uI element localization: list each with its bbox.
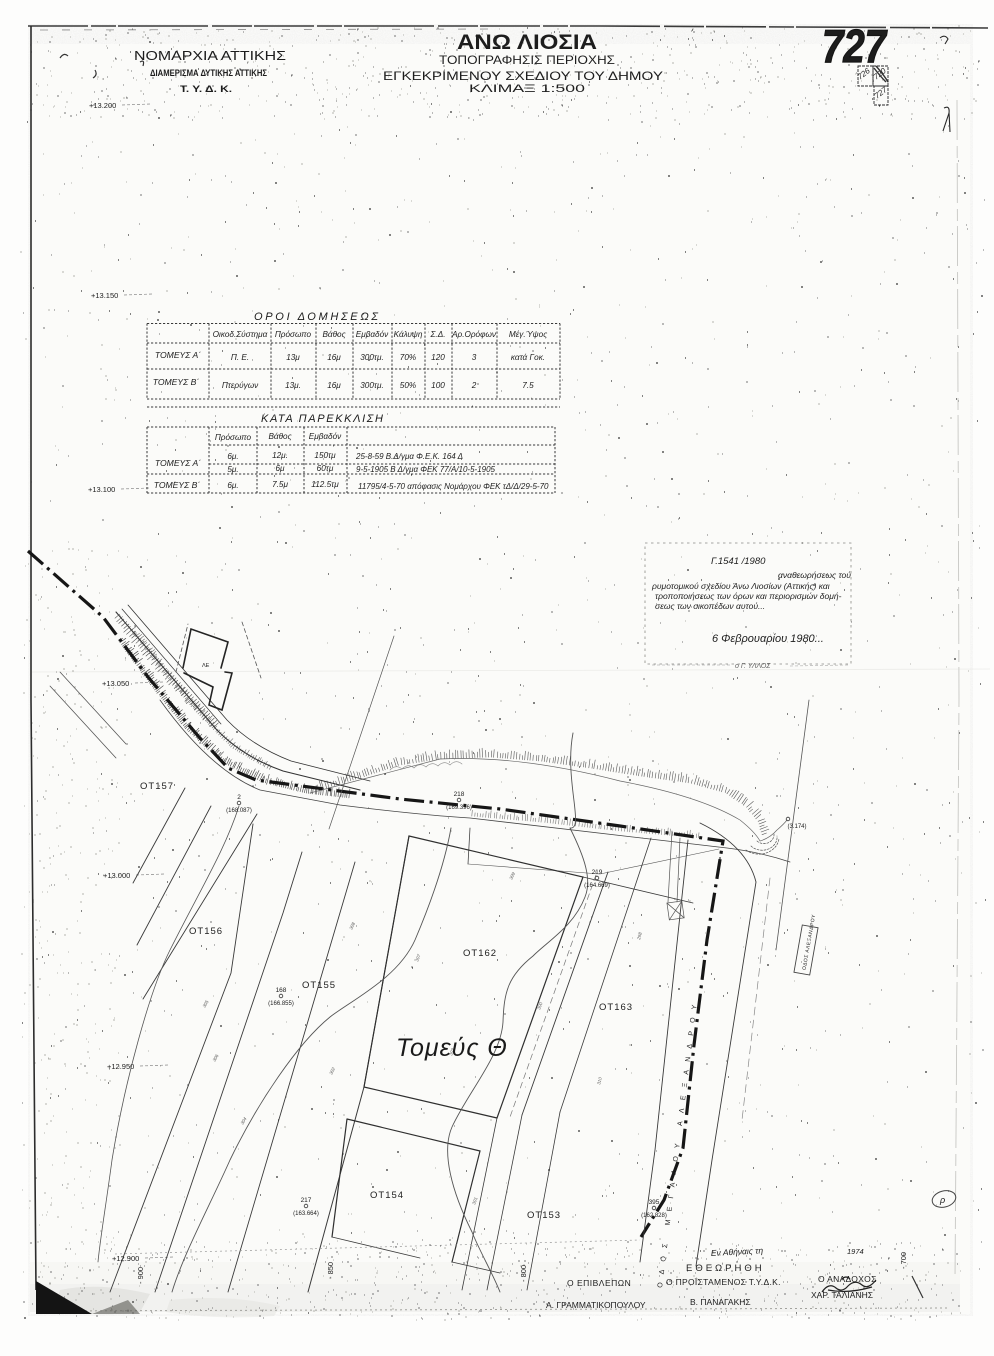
svg-text:(166.855): (166.855): [268, 1001, 294, 1007]
svg-text:218: 218: [454, 791, 465, 798]
svg-text:Γ.1541 /1980: Γ.1541 /1980: [711, 556, 766, 567]
svg-text:13μ.: 13μ.: [285, 381, 301, 390]
svg-text:Α. ΓΡΑΜΜΑΤΙΚΟΠΟΥΛΟΥ: Α. ΓΡΑΜΜΑΤΙΚΟΠΟΥΛΟΥ: [546, 1300, 646, 1310]
svg-text:+13.000: +13.000: [103, 871, 130, 880]
svg-text:Σ.Δ.: Σ.Δ.: [430, 330, 446, 339]
svg-text:Ο ΠΡΟΪΣΤΑΜΕΝΟΣ Τ.Υ.Δ.Κ.: Ο ΠΡΟΪΣΤΑΜΕΝΟΣ Τ.Υ.Δ.Κ.: [666, 1277, 781, 1287]
svg-text:Ο ΕΠΙΒΛΕΠΩΝ: Ο ΕΠΙΒΛΕΠΩΝ: [567, 1278, 631, 1288]
svg-text:Εμβαδόν: Εμβαδόν: [356, 330, 389, 339]
svg-text:- 700: - 700: [899, 1252, 908, 1269]
svg-text:+13.050: +13.050: [102, 679, 129, 688]
svg-text:Ο ΑΝΑΔΟΧΟΣ: Ο ΑΝΑΔΟΧΟΣ: [818, 1274, 877, 1284]
svg-text:217: 217: [301, 1197, 312, 1204]
svg-text:395: 395: [649, 1199, 660, 1206]
svg-text:(3.174): (3.174): [787, 824, 806, 830]
svg-text:(168.087): (168.087): [226, 808, 252, 814]
svg-text:Π. Ε.: Π. Ε.: [231, 353, 249, 362]
svg-text:σεως των οικοπέδων αυτού...: σεως των οικοπέδων αυτού...: [655, 601, 765, 611]
svg-text:50%: 50%: [400, 381, 416, 390]
svg-text:ΟΤ157: ΟΤ157: [140, 781, 174, 792]
svg-text:120: 120: [431, 353, 445, 362]
svg-text:12μ.: 12μ.: [272, 451, 288, 460]
svg-text:Πρόσωπο: Πρόσωπο: [215, 433, 252, 442]
svg-text:ΑΝΩ ΛΙΟΣΙΑ: ΑΝΩ ΛΙΟΣΙΑ: [457, 31, 597, 54]
svg-text:1974: 1974: [847, 1247, 864, 1256]
svg-text:16μ: 16μ: [327, 381, 341, 390]
svg-text:- 900: - 900: [136, 1267, 145, 1284]
svg-text:Πτερύγων: Πτερύγων: [222, 381, 259, 390]
svg-text:ρ: ρ: [939, 1195, 945, 1205]
svg-text:ΟΤ162: ΟΤ162: [463, 948, 497, 959]
svg-text:Βάθος: Βάθος: [268, 432, 291, 441]
svg-text:ο Γ. ΥΛΛΟΣ: ο Γ. ΥΛΛΟΣ: [735, 663, 771, 670]
svg-text:ΚΛΙΜΑΞ 1:500: ΚΛΙΜΑΞ 1:500: [469, 83, 585, 95]
svg-text:7.5μ: 7.5μ: [272, 480, 288, 489]
svg-text:219: 219: [592, 869, 603, 876]
svg-text:5μ.: 5μ.: [227, 465, 238, 474]
svg-text:(164.669): (164.669): [584, 883, 610, 889]
svg-text:- 850: - 850: [326, 1262, 335, 1279]
svg-text:ΟΤ154: ΟΤ154: [370, 1190, 404, 1201]
svg-text:6μ.: 6μ.: [227, 481, 238, 490]
svg-text:9-5-1905 Β Δ/γμα ΦΕΚ 77/Α/10-5: 9-5-1905 Β Δ/γμα ΦΕΚ 77/Α/10-5-1905: [356, 465, 496, 474]
svg-text:ΕΘΕΩΡΗΘΗ: ΕΘΕΩΡΗΘΗ: [686, 1263, 765, 1274]
svg-text:ΤΟΠΟΓΡΑΦΗΣΙΣ ΠΕΡΙΟΧΗΣ: ΤΟΠΟΓΡΑΦΗΣΙΣ ΠΕΡΙΟΧΗΣ: [439, 53, 615, 67]
svg-text:+13.100: +13.100: [88, 485, 115, 494]
svg-text:300τμ.: 300τμ.: [360, 353, 383, 362]
svg-text:αναθεωρήσεως τού: αναθεωρήσεως τού: [778, 570, 851, 580]
svg-text:2: 2: [471, 381, 477, 390]
svg-text:Τομεύς Θ: Τομεύς Θ: [396, 1034, 508, 1062]
svg-text:100: 100: [431, 381, 445, 390]
svg-text:ΚΑΤΑ ΠΑΡΕΚΚΛΙΣΗ: ΚΑΤΑ ΠΑΡΕΚΚΛΙΣΗ: [261, 413, 383, 425]
svg-text:2: 2: [237, 794, 241, 801]
svg-text:ΤΟΜΕΥΣ Β΄: ΤΟΜΕΥΣ Β΄: [154, 480, 201, 490]
svg-text:60τμ: 60τμ: [317, 464, 334, 473]
svg-text:ΝΟΜΑΡΧΙΑ ΑΤΤΙΚΗΣ: ΝΟΜΑΡΧΙΑ ΑΤΤΙΚΗΣ: [134, 48, 286, 63]
svg-text:ΤΟΜΕΥΣ Α΄: ΤΟΜΕΥΣ Α΄: [155, 350, 201, 360]
svg-text:(169.396): (169.396): [446, 805, 472, 811]
svg-text:- 800: - 800: [519, 1265, 528, 1282]
svg-text:Αρ.Ορόφων: Αρ.Ορόφων: [451, 330, 497, 339]
svg-text:ΛΕ: ΛΕ: [202, 663, 210, 669]
svg-text:κατά Γοκ.: κατά Γοκ.: [511, 353, 545, 362]
svg-text:(163.664): (163.664): [293, 1211, 319, 1217]
svg-text:τροποποιήσεως των όρων και περ: τροποποιήσεως των όρων και περιορισμών δ…: [655, 591, 842, 601]
svg-text:ΟΤ163: ΟΤ163: [599, 1002, 633, 1013]
svg-text:ΤΟΜΕΥΣ Β΄: ΤΟΜΕΥΣ Β΄: [153, 377, 200, 387]
svg-text:3: 3: [472, 353, 477, 362]
svg-text:300τμ.: 300τμ.: [360, 381, 383, 390]
svg-text:Εμβαδόν: Εμβαδόν: [309, 432, 342, 441]
svg-text:13μ: 13μ: [286, 353, 300, 362]
svg-text:ΟΤ155: ΟΤ155: [302, 980, 336, 991]
svg-text:112.5τμ: 112.5τμ: [311, 480, 339, 489]
svg-text:(162.828): (162.828): [641, 1213, 667, 1219]
svg-text:6 Φεβρουαρίου 1980...: 6 Φεβρουαρίου 1980...: [712, 633, 824, 645]
svg-text:Βάθος: Βάθος: [322, 330, 345, 339]
svg-text:6μ: 6μ: [275, 464, 285, 473]
svg-text:25-8-59 Β.Δ/γμα Φ.Ε.Κ. 164 Δ: 25-8-59 Β.Δ/γμα Φ.Ε.Κ. 164 Δ: [355, 452, 463, 461]
svg-text:70%: 70%: [400, 353, 416, 362]
svg-text:ΟΤ153: ΟΤ153: [527, 1210, 561, 1221]
svg-text:Πρόσωπο: Πρόσωπο: [275, 330, 312, 339]
svg-text:11795/4-5-70 απόφασις Νομάρχου: 11795/4-5-70 απόφασις Νομάρχου ΦΕΚ τΔ/Δ/…: [358, 482, 549, 491]
svg-text:ΤΟΜΕΥΣ Α΄: ΤΟΜΕΥΣ Α΄: [155, 458, 201, 468]
svg-text:ΕΓΚΕΚΡΙΜΕΝΟΥ ΣΧΕΔΙΟΥ ΤΟΥ ΔΗ: ΕΓΚΕΚΡΙΜΕΝΟΥ ΣΧΕΔΙΟΥ ΤΟΥ ΔΗΜΟΥ: [383, 69, 663, 83]
svg-text:ΧΑΡ. ΤΑΛΙΑΝΗΣ: ΧΑΡ. ΤΑΛΙΑΝΗΣ: [811, 1290, 873, 1300]
svg-text:16μ: 16μ: [327, 353, 341, 362]
svg-text:+13.150: +13.150: [91, 291, 118, 300]
svg-text:Οικοδ.Σύστημα: Οικοδ.Σύστημα: [213, 330, 268, 339]
svg-text:6μ.: 6μ.: [227, 452, 238, 461]
svg-text:168: 168: [276, 987, 287, 994]
svg-text:7.5: 7.5: [522, 381, 534, 390]
svg-text:ΔΙΑΜΕΡΙΣΜΑ ΔΥΤΙΚΗΣ ΑΤΤΙΚΗΣ: ΔΙΑΜΕΡΙΣΜΑ ΔΥΤΙΚΗΣ ΑΤΤΙΚΗΣ: [150, 68, 268, 78]
svg-text:Κάλυψη: Κάλυψη: [394, 330, 423, 339]
svg-text:+12.900: +12.900: [112, 1254, 139, 1263]
svg-text:150τμ: 150τμ: [314, 451, 336, 460]
svg-text:ρυμοτομικού σχεδίου Άνω Λιοσίω: ρυμοτομικού σχεδίου Άνω Λιοσίων (Αττικής…: [651, 581, 830, 591]
svg-text:+13.200: +13.200: [89, 101, 116, 110]
svg-text:Μέγ.Ύψος: Μέγ.Ύψος: [509, 330, 547, 339]
svg-text:Τ. Υ. Δ. Κ.: Τ. Υ. Δ. Κ.: [180, 84, 232, 94]
svg-text:727: 727: [822, 20, 888, 72]
svg-text:Β. ΠΑΝΑΓΑΚΗΣ: Β. ΠΑΝΑΓΑΚΗΣ: [690, 1297, 751, 1307]
svg-text:ΟΤ156: ΟΤ156: [189, 926, 223, 937]
